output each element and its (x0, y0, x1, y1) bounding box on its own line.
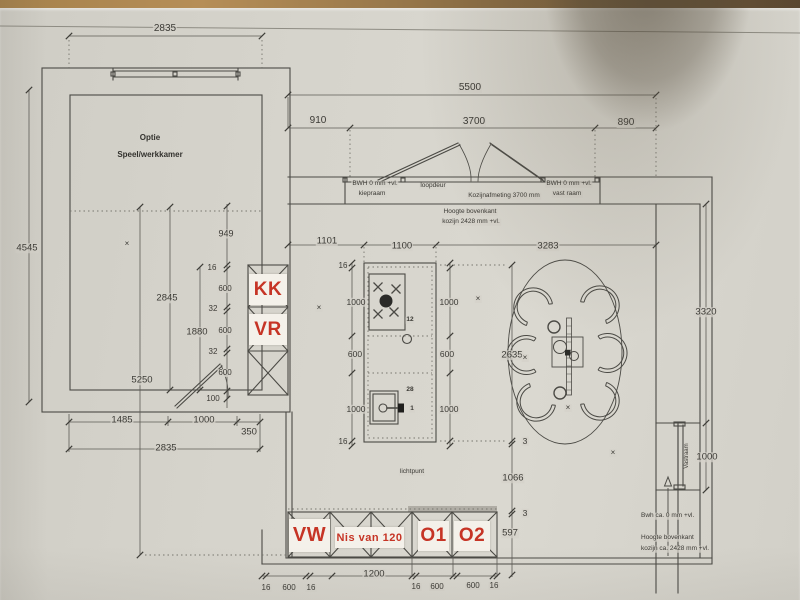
red-label-O2: O2 (454, 521, 490, 551)
red-label-O1: O1 (418, 521, 449, 551)
room-label-line1: Optie (90, 134, 210, 142)
red-label-VW: VW (289, 519, 330, 552)
red-label-Nis-van-120: Nis van 120 (335, 527, 404, 548)
room-label: Optie Speel/werkkamer (90, 134, 210, 159)
photo-of-floorplan: 283555009103700890BWH 0 mm +vl.kiepraaml… (0, 0, 800, 600)
red-label-VR: VR (249, 314, 287, 345)
red-label-layer: KKVRVWNis van 120O1O2 (0, 0, 800, 600)
red-label-KK: KK (249, 274, 287, 305)
room-label-line2: Speel/werkkamer (90, 151, 210, 159)
